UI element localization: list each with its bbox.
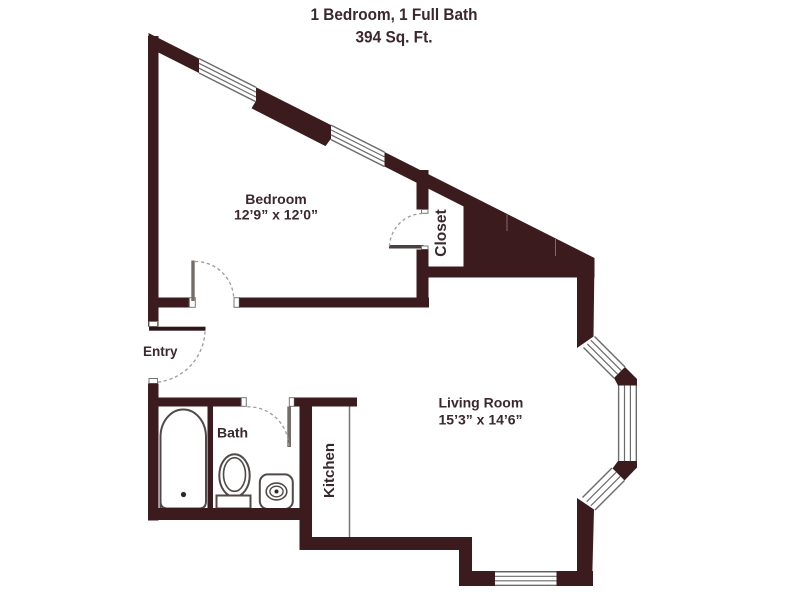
svg-text:Kitchen: Kitchen	[321, 443, 338, 498]
svg-text:394 Sq. Ft.: 394 Sq. Ft.	[356, 28, 433, 47]
svg-text:Bedroom: Bedroom	[245, 191, 306, 207]
svg-text:Closet: Closet	[433, 209, 450, 256]
svg-text:12’9” x 12’0”: 12’9” x 12’0”	[234, 207, 318, 223]
svg-text:Living Room: Living Room	[439, 395, 524, 411]
svg-text:Bath: Bath	[217, 425, 248, 441]
svg-text:Entry: Entry	[143, 344, 178, 359]
svg-text:15’3” x 14’6”: 15’3” x 14’6”	[439, 412, 523, 428]
svg-text:1 Bedroom, 1 Full Bath: 1 Bedroom, 1 Full Bath	[311, 5, 478, 24]
